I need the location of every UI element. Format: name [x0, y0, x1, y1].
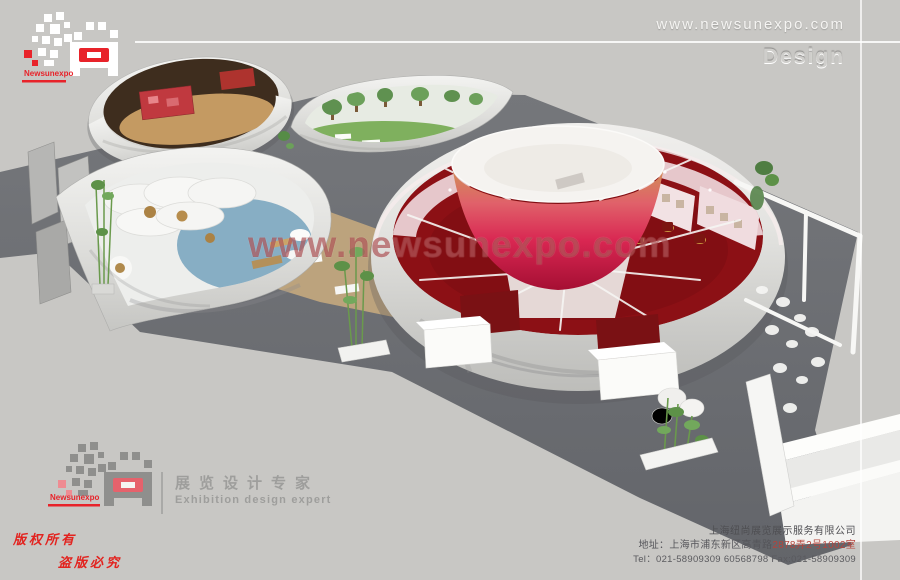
logo-underline-bottom: [48, 504, 100, 507]
website-url: www.newsunexpo.com: [656, 16, 845, 33]
design-label: Design: [763, 45, 845, 69]
counter-box: [424, 324, 492, 368]
company-info: 上海纽尚展览展示服务有限公司 地址：上海市浦东新区高青路2878弄2号1002室…: [633, 525, 856, 567]
company-phone: Tel：021-58909309 60568798 Fax:021-589093…: [633, 553, 856, 567]
brand-footer: Newsunexpo 展览设计专家 Exhibition design expe…: [0, 430, 360, 525]
tagline-chinese: 展览设计专家: [175, 472, 319, 493]
exhibition-design-poster: www.newsunexpo.com Design: [0, 0, 900, 580]
right-frame-rule: [860, 0, 862, 580]
copyright-notice: 版权所有 盗版必究: [13, 529, 122, 571]
watermark-text: www.newsunexpo.com: [248, 224, 672, 266]
address-prefix: 地址：上海市浦东新区高青路: [638, 540, 772, 551]
newsunexpo-logo-top: Newsunexpo: [10, 6, 130, 92]
logo-wordmark: Newsunexpo: [24, 69, 73, 78]
logo-underline: [22, 80, 66, 83]
copyright-line1: 版权所有: [13, 529, 122, 548]
company-address: 地址：上海市浦东新区高青路2878弄2号1002室: [633, 539, 856, 553]
logo-wordmark-bottom: Newsunexpo: [50, 493, 99, 502]
newsunexpo-logo-bottom: Newsunexpo: [44, 436, 164, 522]
pixel-logo-icon: [24, 12, 118, 76]
brand-divider: [161, 472, 163, 514]
address-number: 2878弄2号1002室: [772, 540, 856, 551]
copyright-line2: 盗版必究: [58, 552, 122, 571]
header-rule: [135, 41, 900, 43]
company-name: 上海纽尚展览展示服务有限公司: [633, 525, 856, 539]
tagline-english: Exhibition design expert: [175, 494, 332, 506]
